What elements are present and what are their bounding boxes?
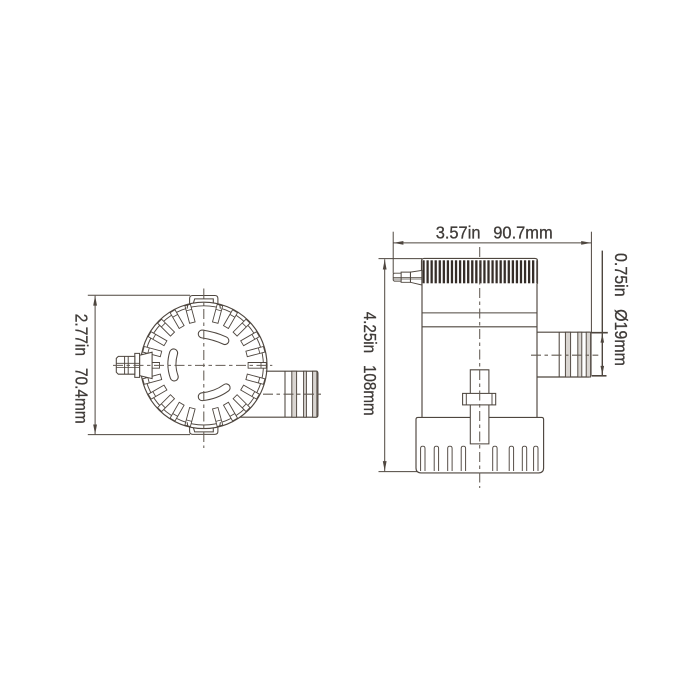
- svg-text:3.57in 90.7mm: 3.57in 90.7mm: [436, 222, 553, 242]
- svg-text:2.77in 70.4mm: 2.77in 70.4mm: [71, 314, 91, 424]
- svg-text:0.75in Ø19mm: 0.75in Ø19mm: [611, 253, 631, 366]
- svg-text:4.25in 108mm: 4.25in 108mm: [360, 312, 380, 416]
